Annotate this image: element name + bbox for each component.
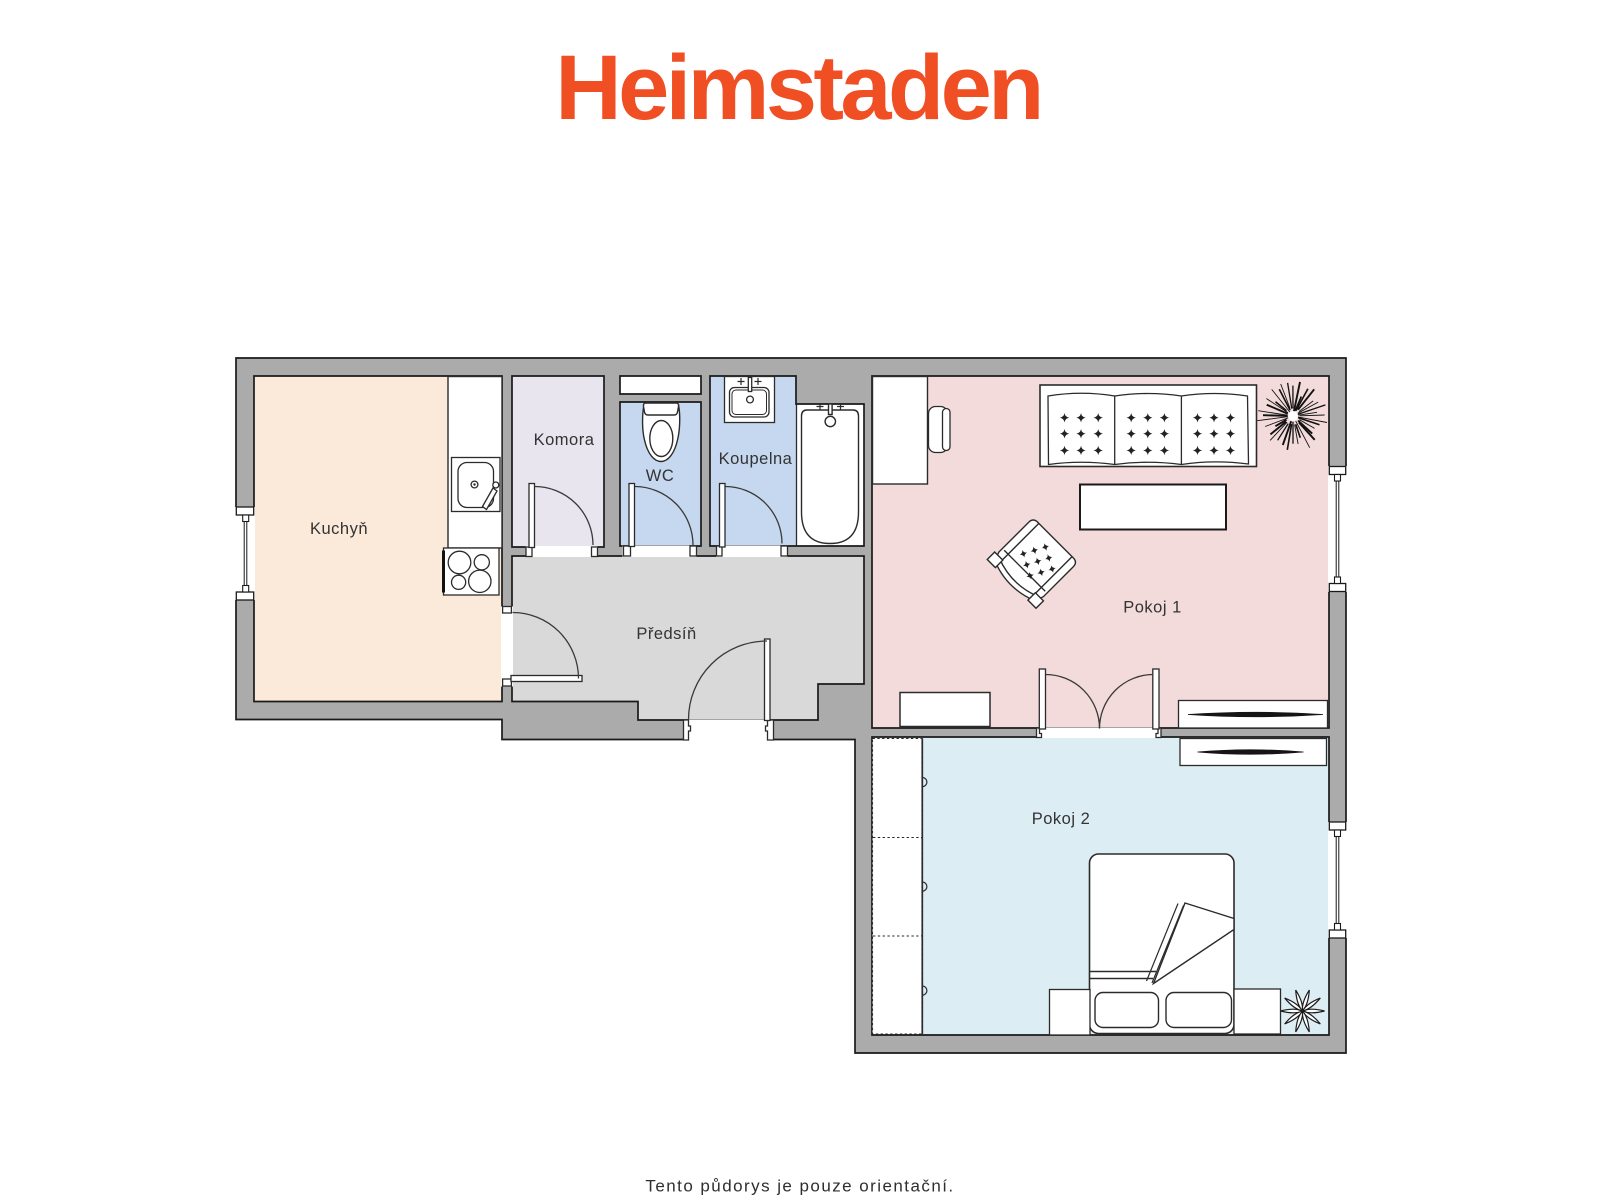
svg-text:Pokoj 1: Pokoj 1 xyxy=(1123,599,1182,617)
svg-text:Komora: Komora xyxy=(534,431,595,449)
svg-text:Heimstaden: Heimstaden xyxy=(555,37,1041,139)
svg-text:Kuchyň: Kuchyň xyxy=(310,520,368,538)
svg-text:Tento půdorys je pouze orienta: Tento půdorys je pouze orientační. xyxy=(645,1177,954,1196)
svg-text:Předsíň: Předsíň xyxy=(636,625,696,643)
svg-text:Pokoj 2: Pokoj 2 xyxy=(1032,810,1091,828)
svg-text:WC: WC xyxy=(646,467,675,485)
svg-text:Koupelna: Koupelna xyxy=(719,450,793,468)
